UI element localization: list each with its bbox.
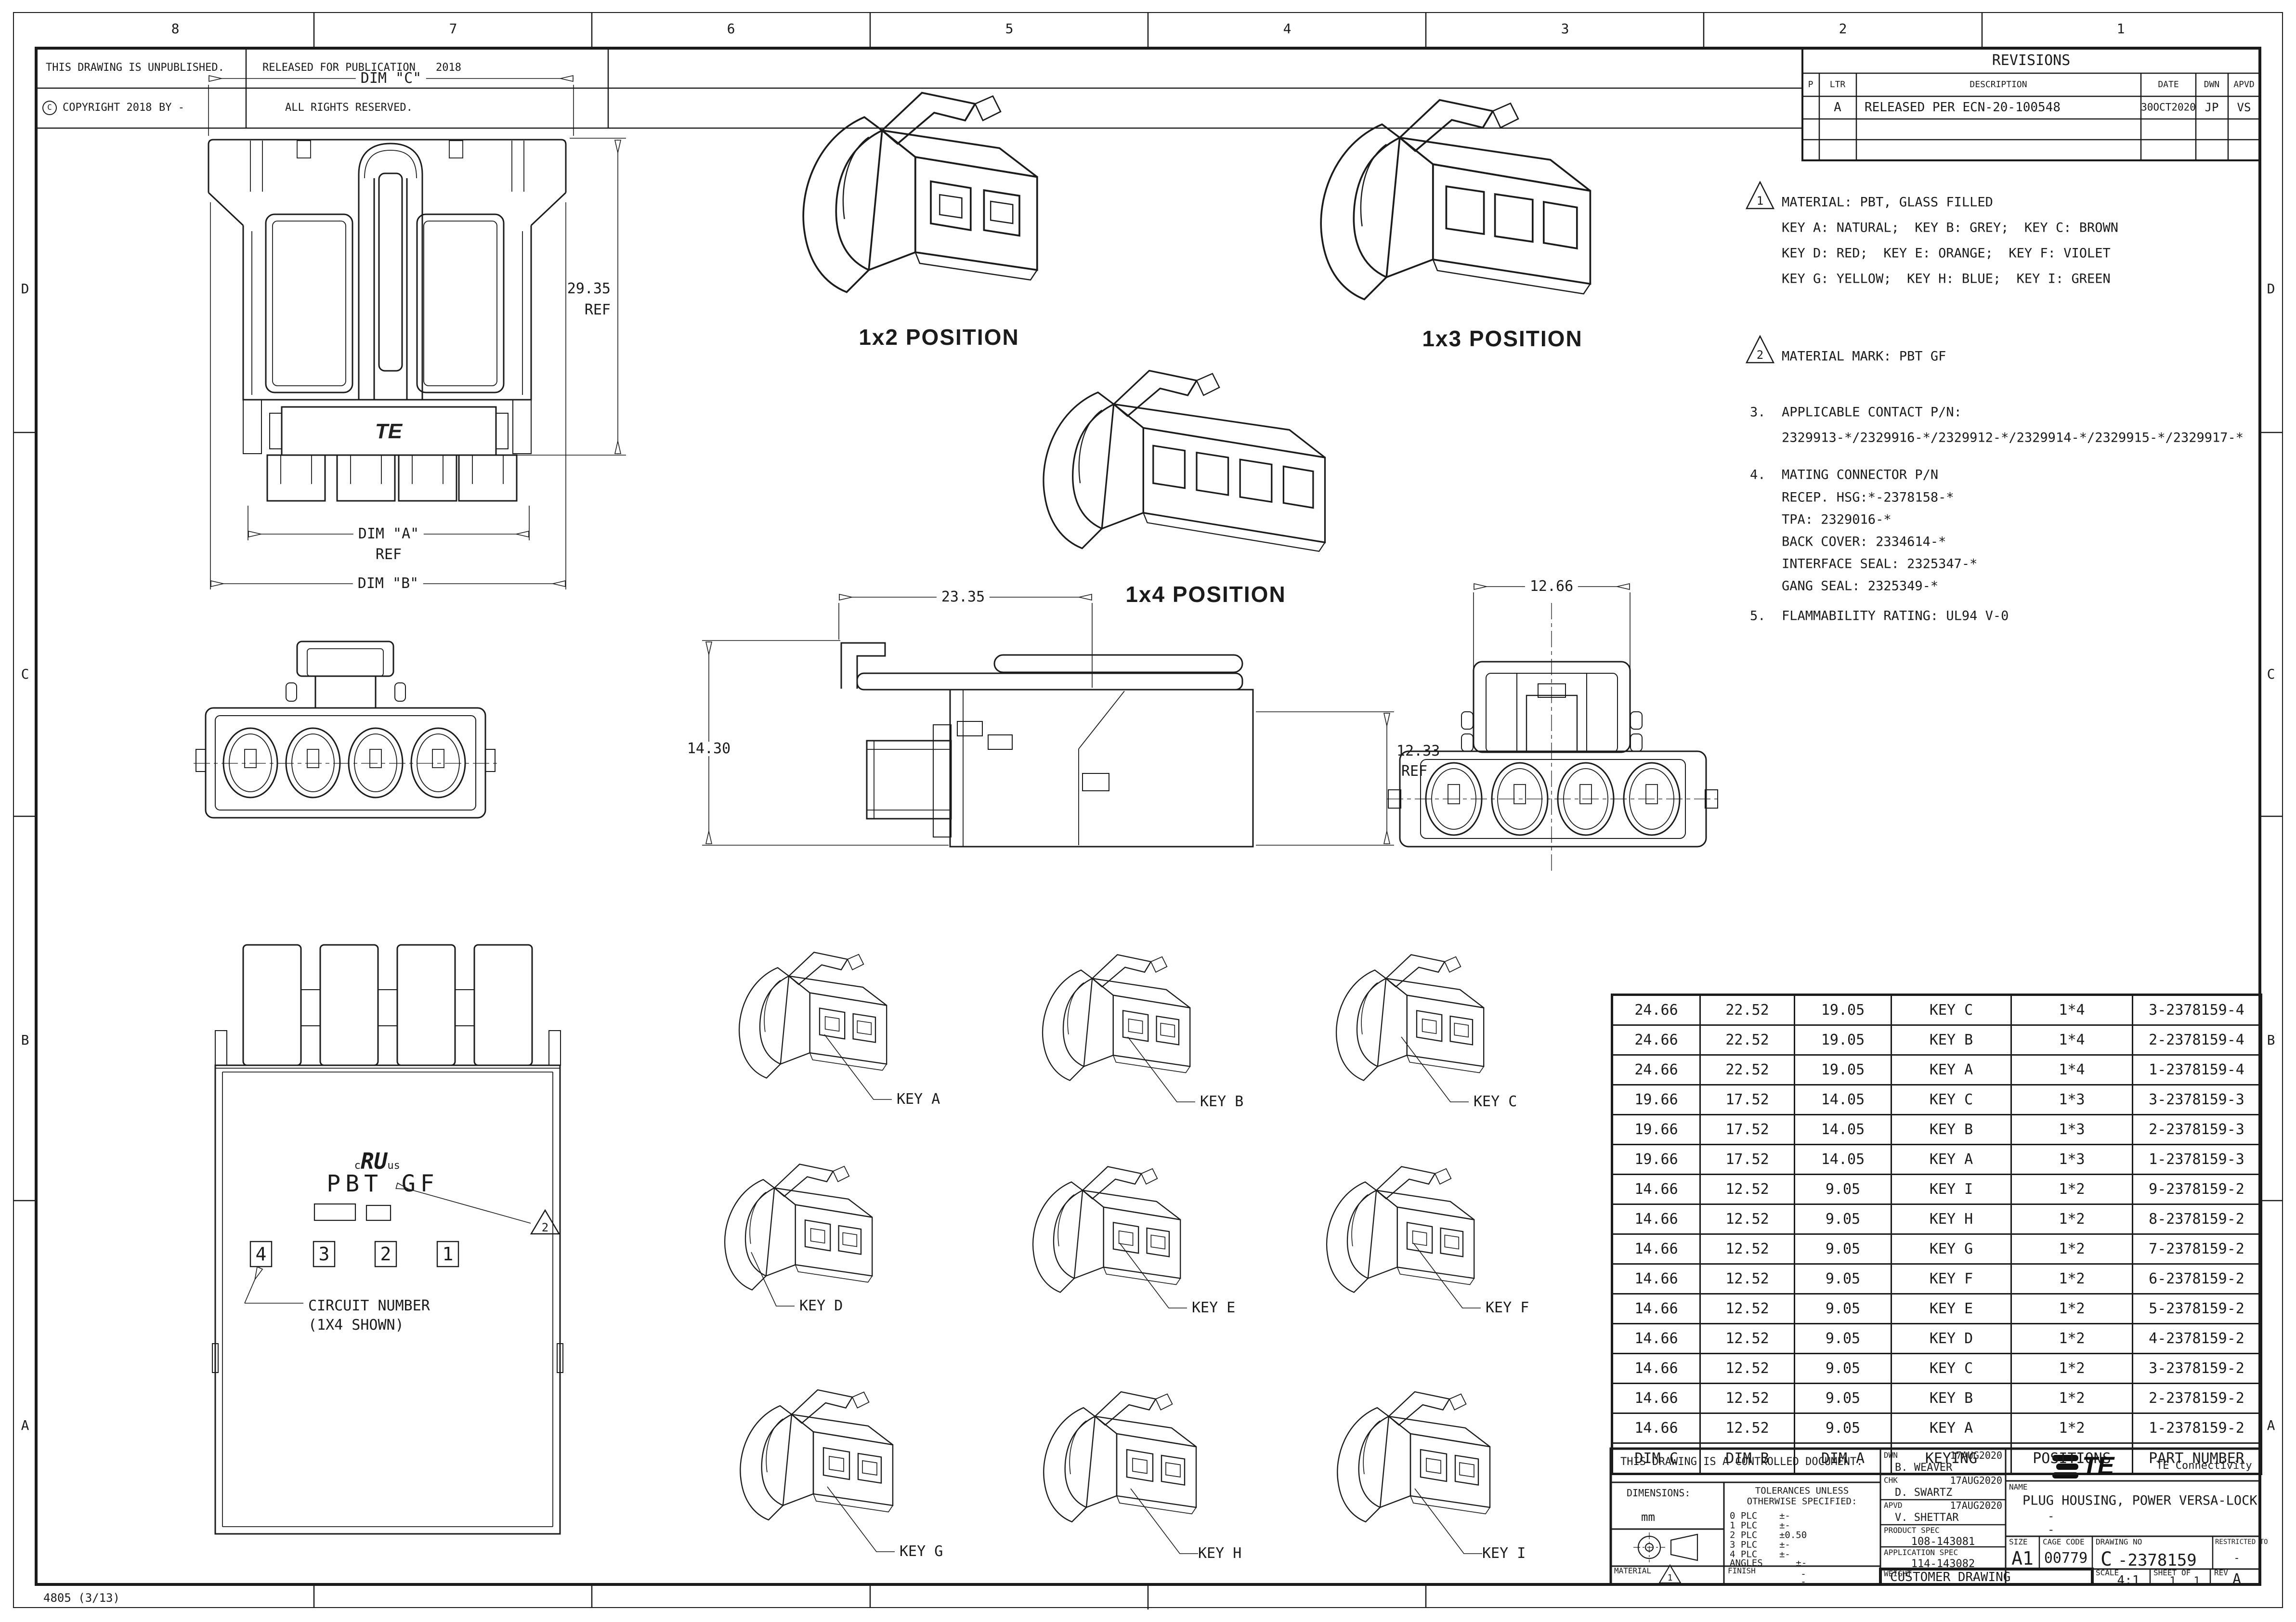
cell-dim-c: 14.66 xyxy=(1612,1354,1700,1384)
cell-dim-c: 14.66 xyxy=(1612,1264,1700,1294)
iso-key-c xyxy=(1336,955,1484,1080)
tol-0plc: 0 PLC ±- xyxy=(1730,1512,1790,1521)
apvd-date: 17AUG2020 xyxy=(1950,1501,2002,1510)
part-name: PLUG HOUSING, POWER VERSA-LOCK xyxy=(2022,1494,2257,1507)
revisions-title: REVISIONS xyxy=(1992,53,2071,68)
product-spec-value: 108-143081 xyxy=(1911,1537,1975,1547)
revisions-col-dwn: DWN xyxy=(2204,80,2220,89)
note1-line4: KEY G: YELLOW; KEY H: BLUE; KEY I: GREEN xyxy=(1782,273,2111,286)
table-row: 14.66 12.52 9.05 KEY C 1*2 3-2378159-2 xyxy=(1612,1354,2261,1384)
dwn-date: 17AUG2020 xyxy=(1950,1451,2002,1460)
note4-line1: MATING CONNECTOR P/N xyxy=(1782,469,1938,482)
chk-name: D. SWARTZ xyxy=(1895,1488,1952,1498)
cell-part-number: 9-2378159-2 xyxy=(2133,1175,2261,1204)
note-flag-2: 2 xyxy=(1757,349,1763,361)
cell-dim-b: 12.52 xyxy=(1700,1234,1795,1264)
tol-2plc: 2 PLC ±0.50 xyxy=(1730,1531,1807,1540)
cell-dim-b: 12.52 xyxy=(1700,1384,1795,1413)
note1-line3: KEY D: RED; KEY E: ORANGE; KEY F: VIOLET xyxy=(1782,247,2111,260)
company-name: TE Connectivity xyxy=(2156,1461,2252,1471)
apvd-label: APVD xyxy=(1884,1502,1903,1509)
scale-label: SCALE xyxy=(2096,1569,2119,1577)
cell-dim-c: 24.66 xyxy=(1612,995,1700,1025)
iso-key-d xyxy=(725,1164,872,1290)
name-label: NAME xyxy=(2009,1483,2028,1491)
cage-code-value: 00779 xyxy=(2044,1551,2087,1566)
note-flag-1: 1 xyxy=(1757,195,1763,207)
label-key-b: KEY B xyxy=(1200,1095,1243,1109)
table-row: 14.66 12.52 9.05 KEY B 1*2 2-2378159-2 xyxy=(1612,1384,2261,1413)
header-positions: POSITIONS xyxy=(2011,1443,2133,1474)
revisions-col-date: DATE xyxy=(2158,80,2179,89)
cell-part-number: 1-2378159-3 xyxy=(2133,1145,2261,1175)
size-value: A1 xyxy=(2011,1549,2034,1568)
cell-dim-b: 12.52 xyxy=(1700,1354,1795,1384)
sheet-no: 1 xyxy=(2169,1576,2176,1587)
copyright-symbol: C xyxy=(42,101,57,115)
zone-right-d: D xyxy=(2267,282,2275,296)
cell-keying: KEY D xyxy=(1892,1324,2011,1354)
material-label: MATERIAL xyxy=(1614,1567,1651,1575)
cell-positions: 1*3 xyxy=(2011,1085,2133,1115)
cell-dim-b: 17.52 xyxy=(1700,1085,1795,1115)
dim-29-35: 29.35 xyxy=(567,282,611,296)
circuit-number-1: 1 xyxy=(443,1245,454,1263)
cell-dim-c: 24.66 xyxy=(1612,1025,1700,1055)
cell-keying: KEY G xyxy=(1892,1234,2011,1264)
cell-part-number: 8-2378159-2 xyxy=(2133,1204,2261,1234)
note1-line1: MATERIAL: PBT, GLASS FILLED xyxy=(1782,196,1993,209)
cell-positions: 1*4 xyxy=(2011,995,2133,1025)
cell-dim-a: 14.05 xyxy=(1795,1145,1892,1175)
dim-12-66: 12.66 xyxy=(1525,579,1578,594)
finish-label: FINISH xyxy=(1728,1567,1756,1575)
size-label: SIZE xyxy=(2009,1538,2028,1546)
tol-1plc: 1 PLC ±- xyxy=(1730,1521,1790,1530)
cell-part-number: 3-2378159-4 xyxy=(2133,995,2261,1025)
drawing-no-value: -2378159 xyxy=(2118,1552,2197,1569)
cell-positions: 1*3 xyxy=(2011,1115,2133,1145)
cell-part-number: 4-2378159-2 xyxy=(2133,1324,2261,1354)
revisions-col-ltr: LTR xyxy=(1830,80,1846,89)
label-1x4-position: 1x4 POSITION xyxy=(1125,583,1286,605)
rev-row-apvd: VS xyxy=(2237,102,2251,113)
side-view-dims xyxy=(702,597,1394,845)
tolerances-line2: OTHERWISE SPECIFIED: xyxy=(1747,1497,1857,1506)
right-mating-centerlines xyxy=(1387,603,1720,872)
copyright-text: COPYRIGHT 2018 xyxy=(63,103,152,113)
controlled-document-note: THIS DRAWING IS A CONTROLLED DOCUMENT. xyxy=(1620,1457,1863,1467)
drawing-no-label: DRAWING NO xyxy=(2096,1538,2142,1546)
cell-dim-a: 19.05 xyxy=(1795,1025,1892,1055)
circuit-callout-line2: (1X4 SHOWN) xyxy=(308,1318,404,1333)
product-spec-label: PRODUCT SPEC xyxy=(1884,1527,1940,1534)
iso-key-g xyxy=(740,1390,893,1520)
cell-keying: KEY C xyxy=(1892,1354,2011,1384)
table-row: 24.66 22.52 19.05 KEY A 1*4 1-2378159-4 xyxy=(1612,1055,2261,1085)
cell-dim-a: 14.05 xyxy=(1795,1085,1892,1115)
application-spec-value: 114-143082 xyxy=(1911,1559,1975,1570)
table-row: 14.66 12.52 9.05 KEY G 1*2 7-2378159-2 xyxy=(1612,1234,2261,1264)
cell-dim-c: 24.66 xyxy=(1612,1055,1700,1085)
note3-line2: 2329913-*/2329916-*/2329912-*/2329914-*/… xyxy=(1782,432,2244,445)
cell-dim-a: 9.05 xyxy=(1795,1413,1892,1443)
iso-1x4 xyxy=(1044,371,1325,551)
dim-12-33: 12.33 xyxy=(1396,744,1440,759)
zone-top-7: 7 xyxy=(449,22,457,36)
note-flags xyxy=(1747,182,1774,363)
cell-dim-b: 12.52 xyxy=(1700,1413,1795,1443)
customer-drawing-label: CUSTOMER DRAWING xyxy=(1890,1571,2010,1583)
copyright-by: BY - xyxy=(159,103,184,113)
cell-positions: 1*2 xyxy=(2011,1234,2133,1264)
table-row: 19.66 17.52 14.05 KEY C 1*3 3-2378159-3 xyxy=(1612,1085,2261,1115)
back-view xyxy=(212,945,563,1534)
zone-top-8: 8 xyxy=(171,22,180,36)
dim-12-33-ref: REF xyxy=(1401,764,1427,779)
zone-left-b: B xyxy=(21,1033,29,1047)
cell-positions: 1*2 xyxy=(2011,1175,2133,1204)
note5-line1: FLAMMABILITY RATING: UL94 V-0 xyxy=(1782,610,2009,623)
cell-positions: 1*2 xyxy=(2011,1413,2133,1443)
cell-dim-b: 22.52 xyxy=(1700,1025,1795,1055)
cell-dim-b: 12.52 xyxy=(1700,1204,1795,1234)
copyright-strip-lines xyxy=(36,48,1802,128)
note1-line2: KEY A: NATURAL; KEY B: GREY; KEY C: BROW… xyxy=(1782,222,2118,235)
table-row: 14.66 12.52 9.05 KEY H 1*2 8-2378159-2 xyxy=(1612,1204,2261,1234)
iso-key-b xyxy=(1043,955,1190,1080)
material-flag: 1 xyxy=(1668,1574,1673,1583)
cell-part-number: 2-2378159-4 xyxy=(2133,1025,2261,1055)
zone-top-4: 4 xyxy=(1283,22,1291,36)
cell-dim-b: 22.52 xyxy=(1700,1055,1795,1085)
note4-line6: GANG SEAL: 2325349-* xyxy=(1782,580,1938,593)
label-1x3-position: 1x3 POSITION xyxy=(1422,327,1582,350)
all-rights: ALL RIGHTS RESERVED. xyxy=(285,103,413,113)
cell-dim-c: 14.66 xyxy=(1612,1413,1700,1443)
cell-keying: KEY A xyxy=(1892,1055,2011,1085)
iso-key-a xyxy=(739,952,887,1078)
note3-line1: APPLICABLE CONTACT P/N: xyxy=(1782,406,1962,419)
cell-keying: KEY B xyxy=(1892,1025,2011,1055)
cell-dim-c: 19.66 xyxy=(1612,1145,1700,1175)
front-view xyxy=(209,140,566,501)
cell-dim-b: 12.52 xyxy=(1700,1175,1795,1204)
zone-left-d: D xyxy=(21,282,29,296)
chk-label: CHK xyxy=(1884,1477,1898,1484)
cell-part-number: 2-2378159-2 xyxy=(2133,1384,2261,1413)
cell-dim-c: 14.66 xyxy=(1612,1384,1700,1413)
label-key-e: KEY E xyxy=(1192,1301,1235,1315)
restricted-value: - xyxy=(2233,1553,2240,1564)
label-key-a: KEY A xyxy=(897,1092,940,1107)
cell-dim-a: 19.05 xyxy=(1795,1055,1892,1085)
note2: MATERIAL MARK: PBT GF xyxy=(1782,350,1946,363)
cell-positions: 1*2 xyxy=(2011,1384,2133,1413)
table-row: 14.66 12.52 9.05 KEY F 1*2 6-2378159-2 xyxy=(1612,1264,2261,1294)
drawing-no-prefix: C xyxy=(2100,1550,2112,1569)
te-logo-front-view: TE xyxy=(375,421,402,442)
circuit-number-3: 3 xyxy=(319,1245,330,1263)
note5-num: 5. xyxy=(1750,610,1766,623)
zone-right-a: A xyxy=(2267,1419,2275,1432)
table-row: 14.66 12.52 9.05 KEY I 1*2 9-2378159-2 xyxy=(1612,1175,2261,1204)
cell-keying: KEY H xyxy=(1892,1204,2011,1234)
zone-top-6: 6 xyxy=(727,22,735,36)
unpublished-note: THIS DRAWING IS UNPUBLISHED. xyxy=(46,63,224,73)
circuit-number-4: 4 xyxy=(256,1245,267,1263)
cell-part-number: 5-2378159-2 xyxy=(2133,1294,2261,1324)
cell-dim-a: 14.05 xyxy=(1795,1115,1892,1145)
zone-right-c: C xyxy=(2267,667,2275,681)
dwn-name: B. WEAVER xyxy=(1895,1463,1952,1473)
cell-positions: 1*2 xyxy=(2011,1264,2133,1294)
cell-keying: KEY B xyxy=(1892,1115,2011,1145)
zone-top-5: 5 xyxy=(1005,22,1014,36)
cell-positions: 1*2 xyxy=(2011,1294,2133,1324)
label-key-d: KEY D xyxy=(799,1299,843,1313)
cell-keying: KEY B xyxy=(1892,1384,2011,1413)
label-key-f: KEY F xyxy=(1486,1301,1529,1315)
dimensions-label: DIMENSIONS: xyxy=(1627,1488,1690,1498)
dim-29-35-ref: REF xyxy=(585,303,611,317)
table-row: 14.66 12.52 9.05 KEY A 1*2 1-2378159-2 xyxy=(1612,1413,2261,1443)
cell-positions: 1*4 xyxy=(2011,1055,2133,1085)
ul-recognized-icon: cRUus xyxy=(341,1139,400,1172)
cell-dim-a: 9.05 xyxy=(1795,1294,1892,1324)
apvd-name: V. SHETTAR xyxy=(1895,1513,1958,1523)
zone-top-3: 3 xyxy=(1561,22,1569,36)
cell-positions: 1*3 xyxy=(2011,1145,2133,1175)
back-flag-2: 2 xyxy=(542,1222,548,1233)
form-code: 4805 (3/13) xyxy=(43,1592,120,1604)
cell-keying: KEY I xyxy=(1892,1175,2011,1204)
dim-c-label: DIM "C" xyxy=(356,71,426,86)
note4-line5: INTERFACE SEAL: 2325347-* xyxy=(1782,558,1977,571)
cell-positions: 1*4 xyxy=(2011,1025,2133,1055)
table-row: 24.66 22.52 19.05 KEY B 1*4 2-2378159-4 xyxy=(1612,1025,2261,1055)
dim-a-ref: REF xyxy=(376,548,402,562)
part-name-sub1: - xyxy=(2048,1510,2054,1522)
cell-positions: 1*2 xyxy=(2011,1354,2133,1384)
cell-keying: KEY F xyxy=(1892,1264,2011,1294)
cell-dim-a: 9.05 xyxy=(1795,1264,1892,1294)
revisions-col-p: P xyxy=(1808,80,1813,89)
table-row: 19.66 17.52 14.05 KEY B 1*3 2-2378159-3 xyxy=(1612,1115,2261,1145)
cell-dim-a: 9.05 xyxy=(1795,1354,1892,1384)
note4-num: 4. xyxy=(1750,469,1766,482)
label-1x2-position: 1x2 POSITION xyxy=(859,326,1019,348)
cell-keying: KEY C xyxy=(1892,1085,2011,1115)
tol-3plc: 3 PLC ±- xyxy=(1730,1541,1790,1550)
iso-key-h xyxy=(1044,1392,1196,1522)
cell-part-number: 1-2378159-2 xyxy=(2133,1413,2261,1443)
cell-keying: KEY E xyxy=(1892,1294,2011,1324)
application-spec-label: APPLICATION SPEC xyxy=(1884,1549,1958,1557)
dim-14-30: 14.30 xyxy=(682,742,735,756)
left-mating-view xyxy=(196,641,495,818)
table-row: 14.66 12.52 9.05 KEY D 1*2 4-2378159-2 xyxy=(1612,1324,2261,1354)
side-view xyxy=(841,643,1253,847)
dim-23-35: 23.35 xyxy=(937,590,990,604)
iso-key-e xyxy=(1033,1166,1180,1292)
cell-part-number: 3-2378159-2 xyxy=(2133,1354,2261,1384)
part-name-sub2: - xyxy=(2048,1524,2054,1535)
te-logo: TE xyxy=(2082,1453,2114,1478)
rev-row-dwn: JP xyxy=(2205,102,2219,113)
cell-dim-c: 14.66 xyxy=(1612,1204,1700,1234)
rev-row-date: 30OCT2020 xyxy=(2141,103,2196,113)
drawing-sheet: 8 7 6 5 4 3 2 1 D C B A D C B A 4805 (3/… xyxy=(0,0,2296,1622)
cell-dim-c: 19.66 xyxy=(1612,1115,1700,1145)
part-number-table-body: 24.66 22.52 19.05 KEY C 1*4 3-2378159-4 … xyxy=(1612,995,2261,1443)
circuit-callout-line1: CIRCUIT NUMBER xyxy=(308,1299,430,1313)
tolerances-line1: TOLERANCES UNLESS xyxy=(1755,1487,1849,1496)
cell-dim-a: 9.05 xyxy=(1795,1175,1892,1204)
cell-part-number: 7-2378159-2 xyxy=(2133,1234,2261,1264)
restricted-label: RESTRICTED TO xyxy=(2215,1539,2268,1545)
rev-row-description: RELEASED PER ECN-20-100548 xyxy=(1865,101,2061,114)
iso-1x3 xyxy=(1321,100,1590,300)
dim-a-label: DIM "A" xyxy=(353,527,424,541)
label-key-h: KEY H xyxy=(1198,1546,1241,1561)
note4-line3: TPA: 2329016-* xyxy=(1782,513,1892,526)
revisions-col-apvd: APVD xyxy=(2233,80,2254,89)
rev-row-ltr: A xyxy=(1834,101,1841,114)
chk-date: 17AUG2020 xyxy=(1950,1476,2002,1485)
table-row: 14.66 12.52 9.05 KEY E 1*2 5-2378159-2 xyxy=(1612,1294,2261,1324)
cell-keying: KEY C xyxy=(1892,995,2011,1025)
cell-dim-b: 12.52 xyxy=(1700,1324,1795,1354)
label-key-c: KEY C xyxy=(1474,1095,1517,1109)
cell-positions: 1*2 xyxy=(2011,1204,2133,1234)
zone-right-b: B xyxy=(2267,1033,2275,1047)
cell-dim-a: 9.05 xyxy=(1795,1384,1892,1413)
sheet-total: 1 xyxy=(2193,1576,2200,1587)
cell-part-number: 6-2378159-2 xyxy=(2133,1264,2261,1294)
cell-dim-c: 14.66 xyxy=(1612,1234,1700,1264)
zone-top-1: 1 xyxy=(2117,22,2125,36)
sheet-of-label: OF xyxy=(2181,1569,2191,1577)
cell-dim-a: 9.05 xyxy=(1795,1204,1892,1234)
label-key-i: KEY I xyxy=(1482,1546,1526,1561)
cell-dim-c: 14.66 xyxy=(1612,1324,1700,1354)
cell-dim-c: 14.66 xyxy=(1612,1294,1700,1324)
note4-line4: BACK COVER: 2334614-* xyxy=(1782,536,1946,549)
finish-value-2: - xyxy=(1800,1577,1806,1586)
cell-dim-b: 17.52 xyxy=(1700,1115,1795,1145)
units-value: mm xyxy=(1641,1511,1655,1523)
note3-num: 3. xyxy=(1750,406,1766,419)
cell-dim-a: 9.05 xyxy=(1795,1234,1892,1264)
rev-value: A xyxy=(2232,1572,2241,1587)
cell-dim-b: 12.52 xyxy=(1700,1264,1795,1294)
iso-key-i xyxy=(1337,1392,1490,1522)
zone-left-a: A xyxy=(21,1419,29,1432)
circuit-number-2: 2 xyxy=(380,1245,391,1263)
rev-label: REV xyxy=(2214,1569,2228,1577)
cell-keying: KEY A xyxy=(1892,1413,2011,1443)
table-row: 19.66 17.52 14.05 KEY A 1*3 1-2378159-3 xyxy=(1612,1145,2261,1175)
iso-key-f xyxy=(1327,1166,1474,1292)
material-mark-text: PBT GF xyxy=(326,1172,439,1195)
cell-dim-c: 19.66 xyxy=(1612,1085,1700,1115)
cell-keying: KEY A xyxy=(1892,1145,2011,1175)
cell-dim-b: 12.52 xyxy=(1700,1294,1795,1324)
cell-dim-b: 17.52 xyxy=(1700,1145,1795,1175)
cell-dim-b: 22.52 xyxy=(1700,995,1795,1025)
zone-left-c: C xyxy=(21,667,29,681)
dwn-label: DWN xyxy=(1884,1452,1898,1459)
cell-part-number: 3-2378159-3 xyxy=(2133,1085,2261,1115)
dim-b-label: DIM "B" xyxy=(353,576,423,591)
revisions-col-description: DESCRIPTION xyxy=(1970,80,2027,89)
iso-1x2 xyxy=(803,93,1037,292)
cage-code-label: CAGE CODE xyxy=(2043,1538,2085,1546)
cell-dim-c: 14.66 xyxy=(1612,1175,1700,1204)
cell-dim-a: 19.05 xyxy=(1795,995,1892,1025)
label-key-g: KEY G xyxy=(900,1544,943,1559)
cell-dim-a: 9.05 xyxy=(1795,1324,1892,1354)
cell-part-number: 1-2378159-4 xyxy=(2133,1055,2261,1085)
released-year: 2018 xyxy=(436,63,461,73)
part-number-table: 24.66 22.52 19.05 KEY C 1*4 3-2378159-4 … xyxy=(1611,994,2262,1475)
table-row: 24.66 22.52 19.05 KEY C 1*4 3-2378159-4 xyxy=(1612,995,2261,1025)
zone-top-2: 2 xyxy=(1839,22,1847,36)
cell-positions: 1*2 xyxy=(2011,1324,2133,1354)
back-view-leaders xyxy=(245,1186,559,1303)
note4-line2: RECEP. HSG:*-2378158-* xyxy=(1782,491,1954,504)
scale-value: 4:1 xyxy=(2117,1574,2140,1587)
cell-part-number: 2-2378159-3 xyxy=(2133,1115,2261,1145)
